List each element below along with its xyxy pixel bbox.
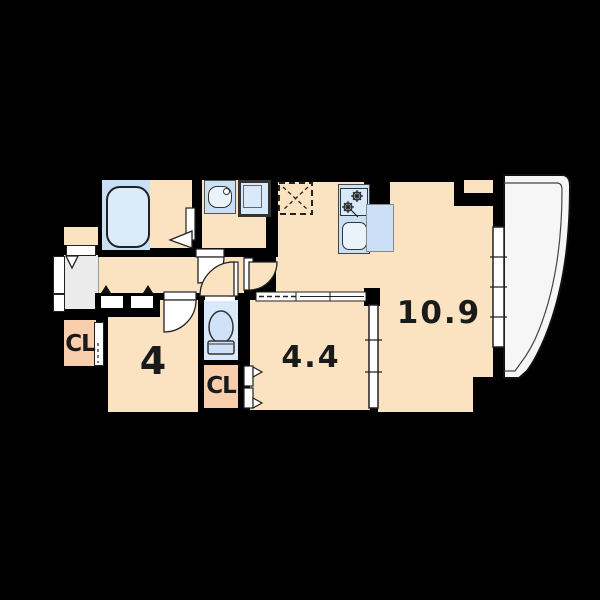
closet-mid-door-2 xyxy=(244,388,253,408)
balcony xyxy=(504,175,570,378)
label-bedroom-a: 4 xyxy=(108,342,198,380)
label-closet-left: CL xyxy=(63,333,97,356)
closet-mid-arrow-2 xyxy=(253,398,262,408)
label-bedroom-b: 4.4 xyxy=(252,343,370,373)
label-living-dining: 10.9 xyxy=(380,298,498,329)
toilet xyxy=(208,311,234,354)
washroom-door-leaf xyxy=(196,249,224,257)
bedroomA-door-leaf xyxy=(164,292,196,300)
label-closet-middle: CL xyxy=(204,375,238,398)
bathroom-door-fold xyxy=(170,231,192,248)
sliding-partition xyxy=(369,305,378,408)
stove-burner-1 xyxy=(351,190,363,202)
hall-triangle-1 xyxy=(101,285,111,293)
bedroomA-door-swing xyxy=(164,300,196,332)
stove-burner-2 xyxy=(342,201,358,217)
floor-plan: 4 4.4 10.9 CL CL xyxy=(0,0,600,600)
hall-triangle-2 xyxy=(143,285,153,293)
entrance-door-mark xyxy=(66,256,78,268)
symbol-overlay xyxy=(0,0,600,600)
ldk-door-swing xyxy=(249,262,277,290)
